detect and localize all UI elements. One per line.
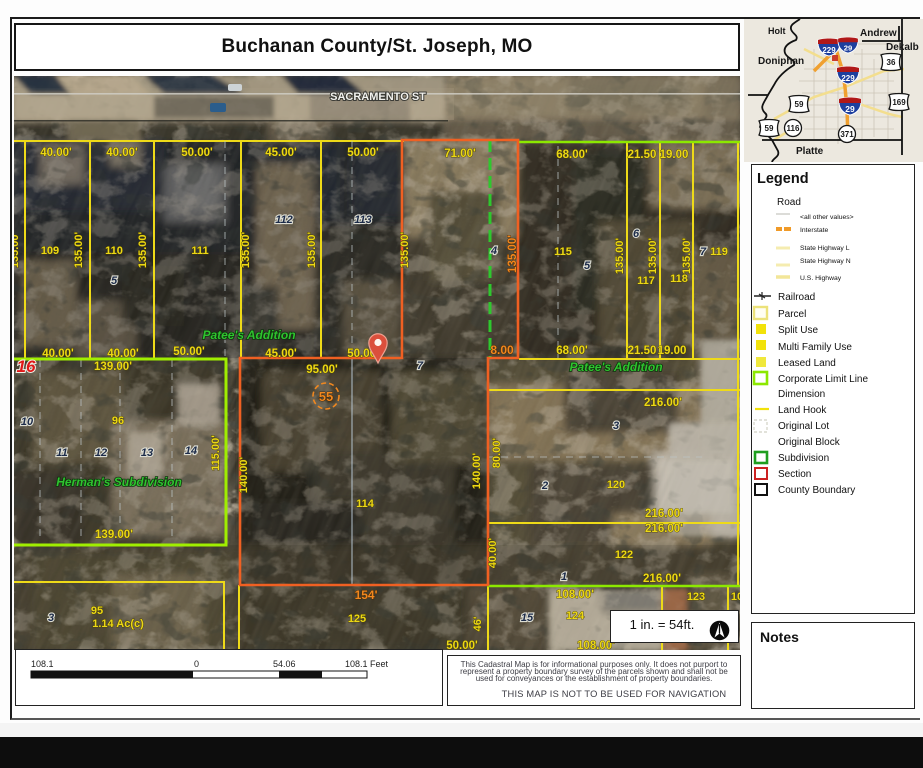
svg-text:110: 110 <box>105 245 123 257</box>
svg-text:5: 5 <box>111 275 118 287</box>
svg-text:114: 114 <box>356 498 375 510</box>
svg-text:Corporate Limit Line: Corporate Limit Line <box>778 374 868 385</box>
svg-text:124: 124 <box>566 610 585 622</box>
svg-text:6: 6 <box>633 228 640 240</box>
svg-text:3: 3 <box>48 612 54 624</box>
svg-text:Holt: Holt <box>768 26 786 36</box>
svg-text:108.1: 108.1 <box>31 659 54 669</box>
svg-text:Legend: Legend <box>757 171 809 187</box>
svg-text:135.00': 135.00' <box>399 231 411 268</box>
svg-text:50.00': 50.00' <box>181 147 213 159</box>
svg-text:111: 111 <box>191 245 208 257</box>
svg-text:135.00': 135.00' <box>681 237 693 274</box>
svg-text:County Boundary: County Boundary <box>778 485 855 496</box>
svg-text:95.00': 95.00' <box>306 364 338 376</box>
svg-text:135.00': 135.00' <box>306 231 318 268</box>
svg-text:21.50: 21.50 <box>628 345 657 357</box>
svg-text:Dekalb: Dekalb <box>886 42 919 53</box>
svg-text:14: 14 <box>185 445 197 457</box>
svg-text:140.00': 140.00' <box>471 452 483 489</box>
svg-text:40.00': 40.00' <box>106 147 138 159</box>
svg-text:Herman's Subdivision: Herman's Subdivision <box>56 475 182 489</box>
svg-text:80.00': 80.00' <box>491 438 503 469</box>
svg-text:Subdivision: Subdivision <box>778 453 829 464</box>
svg-text:Andrew: Andrew <box>860 28 897 39</box>
svg-text:216.00': 216.00' <box>644 397 682 409</box>
svg-text:139.00': 139.00' <box>94 361 132 373</box>
svg-text:7: 7 <box>700 246 707 258</box>
svg-text:15: 15 <box>521 612 534 624</box>
svg-text:1.14 Ac(c): 1.14 Ac(c) <box>92 618 144 630</box>
svg-text:29: 29 <box>844 43 853 52</box>
svg-text:7: 7 <box>417 360 424 372</box>
svg-text:Platte: Platte <box>796 146 824 157</box>
svg-text:108.1 Feet: 108.1 Feet <box>345 659 389 669</box>
svg-text:21.50: 21.50 <box>628 149 657 161</box>
svg-text:140.00': 140.00' <box>238 456 250 493</box>
svg-text:109: 109 <box>41 245 59 257</box>
svg-text:108.00': 108.00' <box>556 589 594 601</box>
svg-text:1: 1 <box>561 571 567 583</box>
svg-text:11: 11 <box>56 447 67 459</box>
svg-text:19.00: 19.00 <box>658 345 687 357</box>
svg-text:<all other values>: <all other values> <box>800 214 854 221</box>
svg-text:Patee's Addition: Patee's Addition <box>569 360 662 374</box>
svg-text:50.00': 50.00' <box>347 147 379 159</box>
svg-text:116: 116 <box>787 124 800 133</box>
svg-text:46': 46' <box>472 616 484 631</box>
svg-text:Original Block: Original Block <box>778 437 841 448</box>
svg-text:118: 118 <box>670 273 688 285</box>
svg-text:71.00': 71.00' <box>444 148 476 160</box>
svg-text:3: 3 <box>613 420 619 432</box>
svg-text:Leased Land: Leased Land <box>778 358 836 369</box>
svg-text:4: 4 <box>490 245 497 257</box>
svg-text:125: 125 <box>348 613 366 625</box>
svg-text:Interstate: Interstate <box>800 227 829 234</box>
svg-text:112: 112 <box>275 214 293 226</box>
svg-text:10: 10 <box>731 591 740 603</box>
svg-text:U.S. Highway: U.S. Highway <box>800 275 842 282</box>
svg-text:50.00': 50.00' <box>446 640 478 650</box>
svg-text:10: 10 <box>21 416 34 428</box>
svg-text:State Highway N: State Highway N <box>800 258 851 265</box>
svg-text:40.00': 40.00' <box>40 147 72 159</box>
svg-text:0: 0 <box>194 659 199 669</box>
svg-text:40.00': 40.00' <box>42 348 74 360</box>
svg-text:29: 29 <box>845 104 855 114</box>
svg-text:Patee's Addition: Patee's Addition <box>202 328 295 342</box>
svg-text:135.00': 135.00' <box>647 237 659 274</box>
svg-text:135.00': 135.00' <box>614 237 626 274</box>
svg-text:154': 154' <box>355 588 378 602</box>
svg-text:2: 2 <box>541 480 548 492</box>
svg-text:113: 113 <box>354 214 372 226</box>
svg-text:State Highway L: State Highway L <box>800 245 850 252</box>
svg-text:50.00': 50.00' <box>173 346 205 358</box>
svg-text:Dimension: Dimension <box>778 389 825 400</box>
svg-text:Doniphan: Doniphan <box>758 56 804 67</box>
svg-text:59: 59 <box>795 100 804 109</box>
svg-text:123: 123 <box>687 591 705 603</box>
svg-text:55: 55 <box>319 389 333 404</box>
svg-text:40.00': 40.00' <box>487 538 499 569</box>
svg-text:13: 13 <box>141 447 153 459</box>
svg-text:120: 120 <box>607 479 625 491</box>
svg-text:135.00': 135.00' <box>240 231 252 268</box>
svg-text:135.00': 135.00' <box>73 231 85 268</box>
svg-text:Section: Section <box>778 469 811 480</box>
svg-text:229: 229 <box>822 46 836 55</box>
svg-text:122: 122 <box>615 549 633 561</box>
svg-text:229: 229 <box>841 74 855 83</box>
svg-text:115: 115 <box>554 246 572 258</box>
svg-text:371: 371 <box>840 130 854 139</box>
svg-text:59: 59 <box>765 124 774 133</box>
svg-text:16: 16 <box>17 357 36 376</box>
svg-text:12: 12 <box>95 447 107 459</box>
svg-text:96: 96 <box>112 415 124 427</box>
svg-text:45.00': 45.00' <box>265 147 297 159</box>
svg-text:95: 95 <box>91 605 103 617</box>
svg-text:216.00': 216.00' <box>643 573 681 585</box>
svg-text:Multi Family Use: Multi Family Use <box>778 342 852 353</box>
svg-text:36: 36 <box>887 58 896 67</box>
svg-text:19.00: 19.00 <box>660 149 689 161</box>
svg-text:54.06: 54.06 <box>273 659 296 669</box>
svg-text:117: 117 <box>637 275 655 287</box>
svg-text:139.00': 139.00' <box>95 529 133 541</box>
svg-text:115.00': 115.00' <box>210 435 222 471</box>
svg-text:169: 169 <box>892 98 906 107</box>
svg-text:45.00': 45.00' <box>265 348 297 360</box>
svg-text:216.00': 216.00' <box>645 523 683 535</box>
svg-text:Road: Road <box>777 197 801 208</box>
svg-text:Parcel: Parcel <box>778 309 806 320</box>
svg-text:SACRAMENTO ST: SACRAMENTO ST <box>330 91 426 103</box>
svg-text:5: 5 <box>584 260 591 272</box>
svg-text:Railroad: Railroad <box>778 292 815 303</box>
svg-text:216.00': 216.00' <box>645 508 683 520</box>
svg-text:68.00': 68.00' <box>556 149 588 161</box>
svg-text:Split Use: Split Use <box>778 325 818 336</box>
svg-text:135.00': 135.00' <box>137 231 149 268</box>
svg-text:Original Lot: Original Lot <box>778 421 829 432</box>
svg-text:135.00': 135.00' <box>507 235 519 273</box>
svg-text:Land Hook: Land Hook <box>778 405 827 416</box>
svg-text:68.00': 68.00' <box>556 345 588 357</box>
svg-text:119: 119 <box>710 246 728 258</box>
svg-text:8.00: 8.00 <box>490 343 514 357</box>
svg-text:135.00': 135.00' <box>14 231 21 268</box>
svg-text:40.00': 40.00' <box>107 348 139 360</box>
